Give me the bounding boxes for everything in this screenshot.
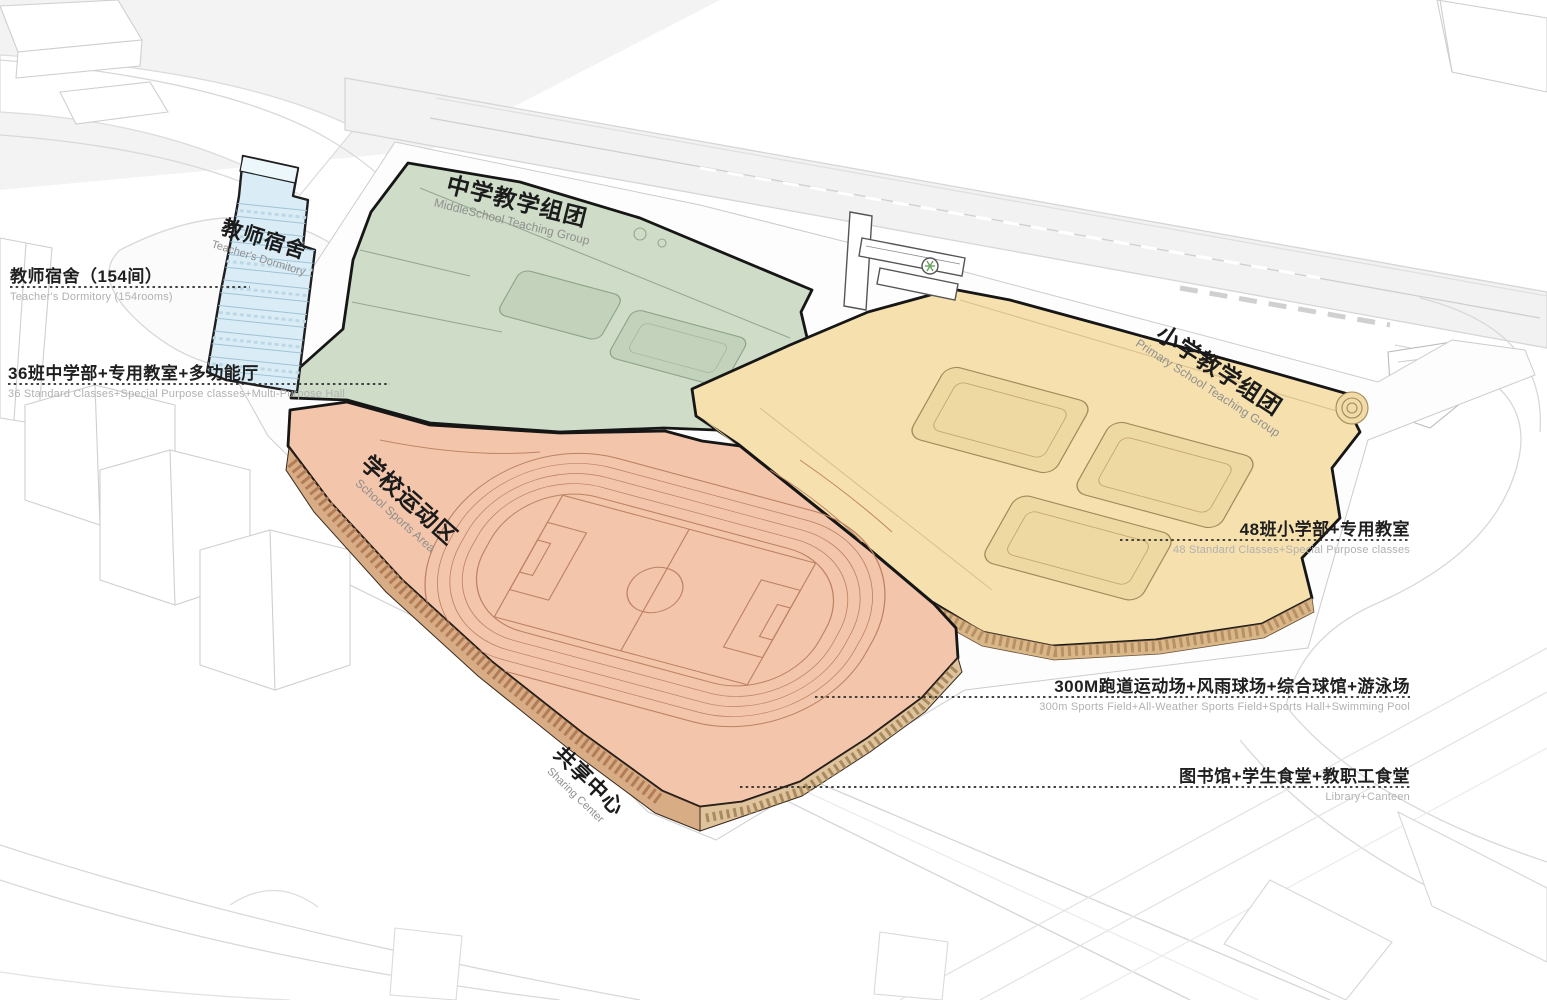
annotation-dormitory-en: Teacher's Dormitory (154rooms) <box>10 291 173 303</box>
annotation-library-zh: 图书馆+学生食堂+教职工食堂 <box>1179 762 1410 787</box>
annotation-primary-zh: 48班小学部+专用教室 <box>1240 515 1410 540</box>
annotation-library-en: Library+Canteen <box>1325 791 1410 803</box>
annotation-sports-zh: 300M跑道运动场+风雨球场+综合球馆+游泳场 <box>1054 672 1410 697</box>
annotation-dormitory-zh: 教师宿舍（154间） <box>10 262 162 287</box>
annotation-middle-en: 36 Standard Classes+Special Purpose clas… <box>8 388 345 400</box>
annotation-middle-zh: 36班中学部+专用教室+多功能厅 <box>8 359 259 384</box>
site-plan-diagram: { "zone_labels": { "dormitory": {"zh": "… <box>0 0 1547 1000</box>
annotation-sports-en: 300m Sports Field+All-Weather Sports Fie… <box>1039 701 1410 713</box>
campus-axonometric-drawing <box>0 0 1547 1000</box>
annotation-primary-en: 48 Standard Classes+Special Purpose clas… <box>1173 544 1410 556</box>
